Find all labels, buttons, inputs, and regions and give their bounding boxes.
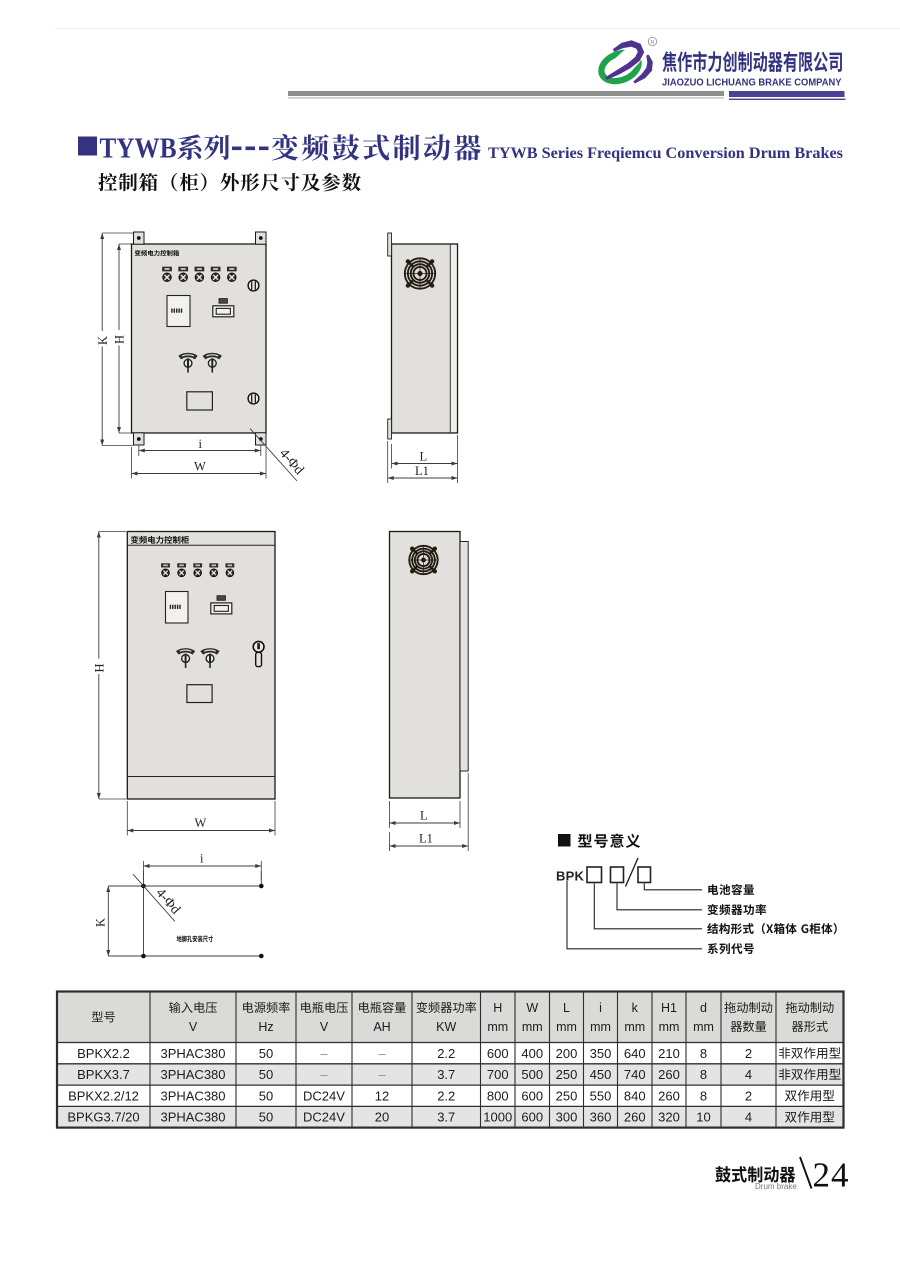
svg-text:–: – (378, 1046, 386, 1061)
svg-text:50: 50 (259, 1088, 273, 1103)
svg-text:R: R (651, 40, 655, 46)
svg-text:K: K (96, 336, 110, 345)
svg-text:3.7: 3.7 (437, 1067, 455, 1082)
svg-text:W: W (195, 816, 207, 830)
svg-text:500: 500 (521, 1067, 543, 1082)
svg-text:d: d (700, 1001, 707, 1015)
svg-text:50: 50 (259, 1110, 273, 1125)
svg-text:V: V (320, 1020, 329, 1034)
svg-text:mm: mm (556, 1020, 577, 1034)
svg-text:L1: L1 (419, 832, 433, 846)
svg-text:8: 8 (700, 1088, 707, 1103)
svg-text:KW: KW (436, 1020, 456, 1034)
svg-text:260: 260 (658, 1088, 680, 1103)
svg-text:450: 450 (590, 1067, 612, 1082)
svg-text:400: 400 (521, 1046, 543, 1061)
svg-text:H: H (113, 335, 127, 344)
svg-text:mm: mm (590, 1020, 611, 1034)
svg-text:740: 740 (624, 1067, 646, 1082)
svg-text:20: 20 (375, 1110, 389, 1125)
svg-text:BPKX2.2: BPKX2.2 (77, 1046, 130, 1061)
svg-text:2: 2 (745, 1046, 752, 1061)
svg-text:–: – (320, 1046, 328, 1061)
svg-text:W: W (194, 460, 206, 474)
svg-text:i: i (599, 1001, 602, 1015)
svg-text:8: 8 (700, 1067, 707, 1082)
svg-text:DC24V: DC24V (303, 1110, 345, 1125)
svg-text:600: 600 (521, 1110, 543, 1125)
svg-text:320: 320 (658, 1110, 680, 1125)
svg-text:Hz: Hz (258, 1020, 273, 1034)
svg-text:4: 4 (745, 1110, 752, 1125)
svg-text:300: 300 (556, 1110, 578, 1125)
svg-text:3PHAC380: 3PHAC380 (160, 1110, 225, 1125)
svg-text:8: 8 (700, 1046, 707, 1061)
svg-text:JIAOZUO LICHUANG BRAKE COMPANY: JIAOZUO LICHUANG BRAKE COMPANY (662, 78, 842, 89)
svg-text:mm: mm (659, 1020, 680, 1034)
svg-text:K: K (94, 918, 108, 927)
svg-text:4: 4 (745, 1067, 752, 1082)
svg-text:L: L (420, 809, 428, 823)
svg-text:600: 600 (521, 1088, 543, 1103)
svg-text:840: 840 (624, 1088, 646, 1103)
svg-text:DC24V: DC24V (303, 1088, 345, 1103)
svg-text:600: 600 (487, 1046, 509, 1061)
svg-text:Drum brake: Drum brake (755, 1182, 797, 1191)
svg-text:mm: mm (693, 1020, 714, 1034)
svg-text:k: k (632, 1001, 639, 1015)
svg-text:i: i (199, 437, 203, 451)
svg-text:800: 800 (487, 1088, 509, 1103)
svg-text:210: 210 (658, 1046, 680, 1061)
svg-text:L1: L1 (415, 464, 429, 478)
svg-text:360: 360 (590, 1110, 612, 1125)
svg-text:1000: 1000 (483, 1110, 512, 1125)
svg-text:700: 700 (487, 1067, 509, 1082)
svg-text:W: W (526, 1001, 538, 1015)
svg-text:L: L (563, 1001, 570, 1015)
svg-text:AH: AH (373, 1020, 390, 1034)
svg-text:200: 200 (556, 1046, 578, 1061)
svg-text:TYWB: TYWB (100, 134, 177, 165)
svg-text:BPKX2.2/12: BPKX2.2/12 (68, 1088, 139, 1103)
svg-text:350: 350 (590, 1046, 612, 1061)
svg-text:2.2: 2.2 (437, 1088, 455, 1103)
svg-text:3PHAC380: 3PHAC380 (160, 1046, 225, 1061)
svg-text:TYWB Series Freqiemcu Conversi: TYWB Series Freqiemcu Conversion Drum Br… (488, 145, 843, 162)
svg-text:H1: H1 (661, 1001, 677, 1015)
svg-text:V: V (189, 1020, 198, 1034)
svg-text:3PHAC380: 3PHAC380 (160, 1067, 225, 1082)
svg-text:550: 550 (590, 1088, 612, 1103)
svg-text:3PHAC380: 3PHAC380 (160, 1088, 225, 1103)
svg-text:50: 50 (259, 1046, 273, 1061)
svg-text:H: H (493, 1001, 502, 1015)
svg-text:BPK: BPK (556, 869, 584, 884)
svg-text:–: – (320, 1067, 328, 1082)
svg-text:250: 250 (556, 1067, 578, 1082)
svg-text:260: 260 (658, 1067, 680, 1082)
svg-text:250: 250 (556, 1088, 578, 1103)
svg-text:640: 640 (624, 1046, 646, 1061)
svg-text:2.2: 2.2 (437, 1046, 455, 1061)
svg-text:3.7: 3.7 (437, 1110, 455, 1125)
svg-text:mm: mm (487, 1020, 508, 1034)
svg-text:50: 50 (259, 1067, 273, 1082)
svg-text:24: 24 (813, 1156, 850, 1195)
svg-text:BPKX3.7: BPKX3.7 (77, 1067, 130, 1082)
svg-text:–: – (378, 1067, 386, 1082)
svg-text:mm: mm (624, 1020, 645, 1034)
svg-text:i: i (200, 852, 204, 866)
svg-text:2: 2 (745, 1088, 752, 1103)
svg-text:12: 12 (375, 1088, 389, 1103)
svg-text:10: 10 (696, 1110, 710, 1125)
svg-text:L: L (420, 450, 428, 464)
svg-text:H: H (92, 663, 106, 672)
svg-text:BPKG3.7/20: BPKG3.7/20 (67, 1110, 139, 1125)
svg-text:mm: mm (522, 1020, 543, 1034)
svg-text:260: 260 (624, 1110, 646, 1125)
